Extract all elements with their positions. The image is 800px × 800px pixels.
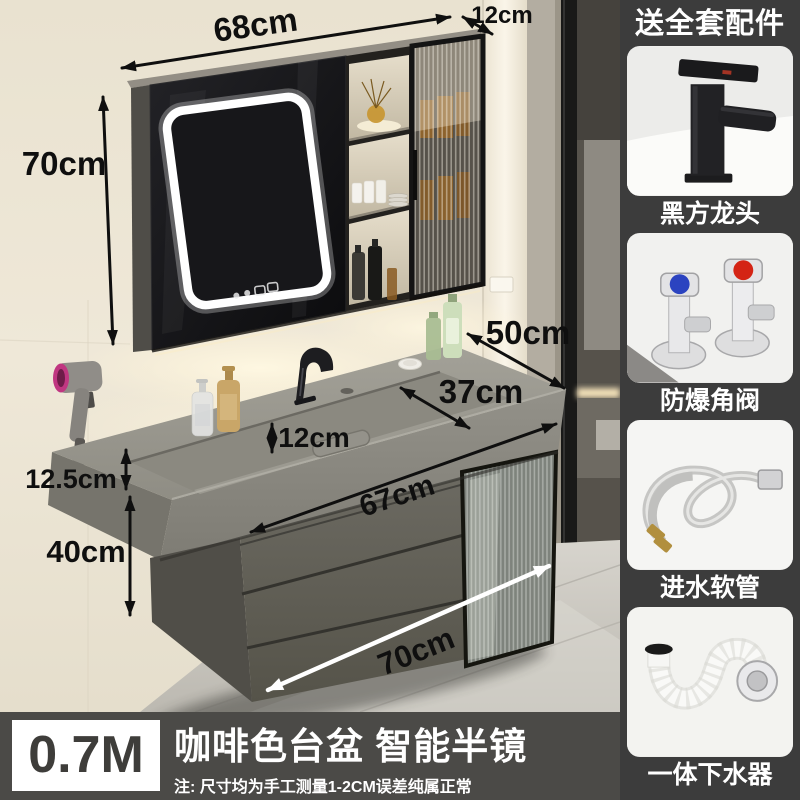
open-shelves [346,46,412,311]
scene-svg: 68cm 12cm 70cm 50cm 37cm 12cm 67cm 12.5c… [0,0,620,712]
dim-counter-side: 50cm [486,314,570,351]
angle-valves-photo [627,233,793,383]
dim-wall-gap: 12.5cm [25,464,117,494]
accessory-label-faucet: 黑方龙头 [620,196,800,233]
measurement-note: 注: 尺寸均为手工测量1-2CM误差纯属正常 [174,773,614,797]
drain-pipe-photo [627,607,793,757]
wall-outlet [490,277,513,292]
led-light-ring [165,95,329,308]
dim-basin-depth: 12cm [278,422,350,453]
hose-icon [627,420,793,570]
size-badge: 0.7M [12,720,160,791]
dim-mirror-depth: 12cm [471,2,532,29]
accessory-item-drain: 一体下水器 [620,607,800,794]
dim-basin-back-width: 37cm [439,373,523,410]
cabinet-fluted-glass-panel [462,452,556,666]
product-scene-photo: 68cm 12cm 70cm 50cm 37cm 12cm 67cm 12.5c… [0,0,620,712]
hose-photo [627,420,793,570]
faucet-icon [627,46,793,196]
accessory-label-hose: 进水软管 [620,570,800,607]
led-mirror-door [150,56,346,350]
accessory-label-valves: 防爆角阀 [620,383,800,420]
product-info-banner: 0.7M 咖啡色台盆 智能半镜 注: 尺寸均为手工测量1-2CM误差纯属正常 [0,712,620,800]
fluted-glass-door [412,36,483,298]
banner-text: 咖啡色台盆 智能半镜 注: 尺寸均为手工测量1-2CM误差纯属正常 [174,716,614,797]
accessory-item-valves: 防爆角阀 [620,233,800,420]
drain-pipe-icon [627,607,793,757]
accessory-item-hose: 进水软管 [620,420,800,607]
product-title: 咖啡色台盆 智能半镜 [174,716,614,770]
faucet-photo [627,46,793,196]
sidebar-title: 送全套配件 [620,0,800,46]
accessories-sidebar: 送全套配件 黑方龙头 [620,0,800,800]
accessory-item-faucet: 黑方龙头 [620,46,800,233]
dim-cabinet-height: 40cm [46,534,125,569]
dim-mirror-height: 70cm [22,145,106,182]
accessory-label-drain: 一体下水器 [620,757,800,794]
angle-valve-icon [627,233,793,383]
